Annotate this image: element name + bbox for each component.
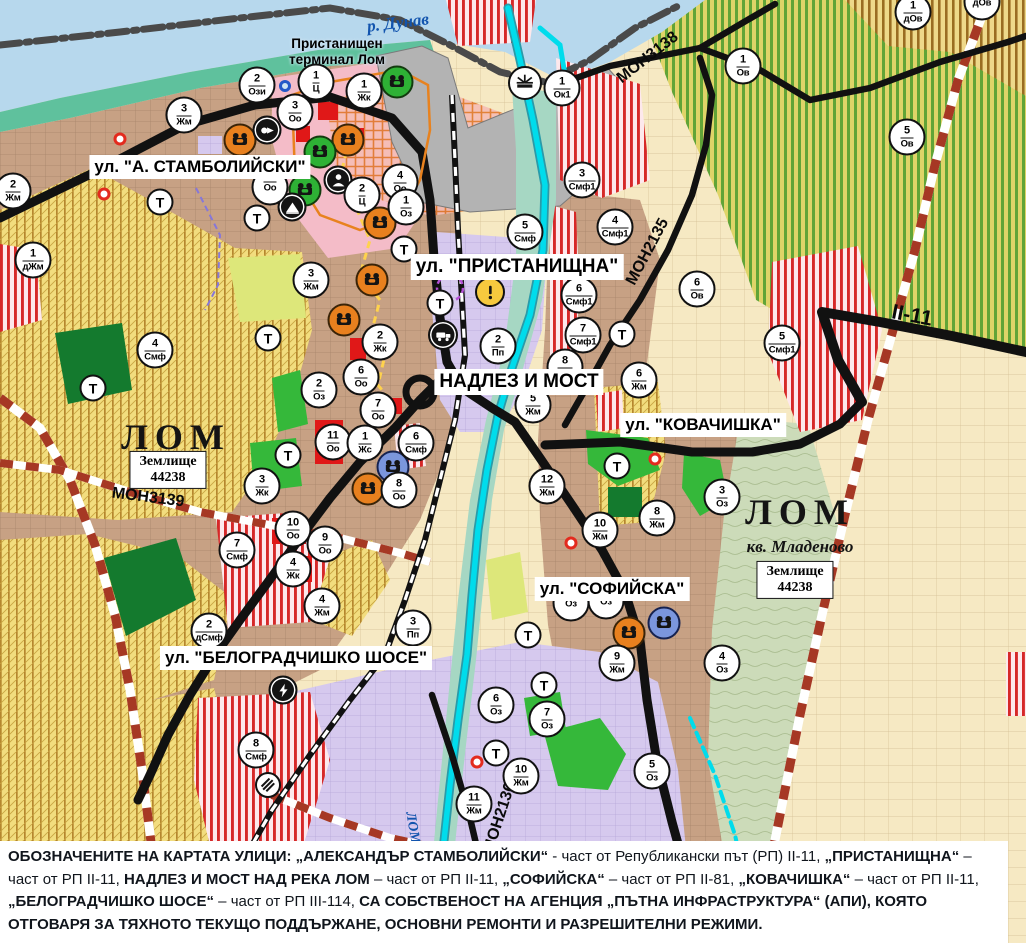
zone-number: 4: [290, 557, 296, 568]
zone-marker-3-Оо: 3Оо: [277, 94, 314, 131]
zone-marker-4-Жк: 4Жк: [275, 551, 312, 588]
zone-marker-5-Смф1: 5Смф1: [764, 325, 801, 362]
culture-site-icon: [356, 264, 389, 297]
zone-number: 4: [152, 338, 158, 349]
zone-code: Жм: [5, 191, 20, 203]
zone-code: Оз: [646, 771, 658, 783]
note-segment: „ПРИСТАНИЩНА“: [825, 848, 960, 865]
zone-code: дСмф: [195, 631, 222, 643]
zone-number: 5: [522, 220, 528, 231]
zone-code: Смф: [144, 350, 165, 362]
note-segment: „КОВАЧИШКА“: [738, 871, 850, 888]
zone-code: Пп: [492, 346, 504, 358]
zone-number: 5: [649, 759, 655, 770]
zone-marker-7-Смф1: 7Смф1: [565, 317, 602, 354]
note-segment: „СОФИЙСКА“: [502, 871, 604, 888]
zone-number: 2: [10, 179, 16, 190]
zone-number: 7: [544, 707, 550, 718]
zone-code: дОв: [973, 0, 992, 8]
zone-number: 6: [413, 431, 419, 442]
zone-marker-1-Оз: 1Оз: [388, 189, 425, 226]
street-label: ул. "БЕЛОГРАДЧИШКО ШОСЕ": [160, 646, 432, 670]
zone-code: Оз: [716, 663, 728, 675]
zone-number: 6: [493, 693, 499, 704]
zone-code: Жм: [314, 606, 329, 618]
note-segment: – част от РП II-11,: [370, 871, 503, 888]
zone-number: 2: [359, 183, 365, 194]
zone-number: 1: [362, 431, 368, 442]
zone-number: 4: [397, 170, 403, 181]
zone-number: 8: [562, 355, 568, 366]
zone-marker-2-Ози: 2Ози: [239, 67, 276, 104]
zone-marker-4-Жм: 4Жм: [304, 588, 341, 625]
warning-icon: [475, 277, 505, 307]
zone-marker-8-Смф: 8Смф: [238, 732, 275, 769]
zone-code: Жм: [631, 380, 646, 392]
zone-code: Ов: [691, 289, 704, 301]
zone-marker-3-Смф1: 3Смф1: [564, 162, 601, 199]
transport-marker: Т: [80, 375, 107, 402]
land-plot-label: Землище 44238: [756, 561, 833, 599]
zone-code: Жм: [539, 486, 554, 498]
zone-code: Ов: [901, 137, 914, 149]
zone-number: 1: [740, 54, 746, 65]
zone-number: 11: [468, 792, 480, 803]
zone-number: 6: [358, 365, 364, 376]
truck-icon: [428, 320, 458, 350]
zone-number: 1: [559, 76, 565, 87]
zone-number: 6: [636, 368, 642, 379]
zone-marker-5-Смф: 5Смф: [507, 214, 544, 251]
zone-marker-6-Жм: 6Жм: [621, 362, 658, 399]
transport-marker: Т: [427, 290, 454, 317]
zone-number: 5: [779, 331, 785, 342]
zone-number: 3: [410, 616, 416, 627]
zone-marker-2-Ц: 2Ц: [344, 177, 381, 214]
portcrane-icon: [508, 66, 542, 100]
transport-marker: Т: [483, 740, 510, 767]
zone-marker-3-Пп: 3Пп: [395, 610, 432, 647]
zone-number: 1: [361, 79, 367, 90]
zone-code: Оо: [287, 529, 300, 541]
zone-number: 1: [313, 70, 319, 81]
note-segment: – част от РП II-81,: [605, 871, 739, 888]
zone-code: Смф: [514, 232, 535, 244]
zone-number: 3: [579, 168, 585, 179]
zone-code: дЖм: [22, 260, 43, 272]
zone-number: 4: [319, 594, 325, 605]
transport-marker: Т: [255, 325, 282, 352]
zone-marker-8-Жм: 8Жм: [639, 500, 676, 537]
zone-code: Смф1: [570, 335, 597, 347]
zone-marker-3-Жм: 3Жм: [166, 97, 203, 134]
transport-marker: Т: [531, 672, 558, 699]
zone-code: Оо: [289, 112, 302, 124]
zone-number: 10: [515, 764, 527, 775]
zone-number: 4: [719, 651, 725, 662]
zone-code: Жм: [303, 280, 318, 292]
zone-number: 3: [308, 268, 314, 279]
map-canvas[interactable]: р. Дунав Пристанищен терминал Лом ЛОМ кв…: [0, 0, 1026, 943]
zone-code: Жк: [374, 342, 387, 354]
map-note: ОБОЗНАЧЕНИТЕ НА КАРТАТА УЛИЦИ: „АЛЕКСАНД…: [0, 841, 1008, 943]
zone-code: Смф: [226, 550, 247, 562]
zone-number: 4: [612, 215, 618, 226]
zone-marker-12-Жм: 12Жм: [529, 468, 566, 505]
zone-marker-8-Оо: 8Оо: [381, 472, 418, 509]
zone-number: 12: [541, 474, 553, 485]
marker-dot-red: [649, 453, 662, 466]
zone-number: 3: [719, 485, 725, 496]
marker-ring-blue: [279, 80, 291, 92]
zone-code: Жс: [358, 443, 371, 455]
zone-number: 10: [287, 517, 299, 528]
transport-marker: Т: [275, 442, 302, 469]
zone-marker-3-Жм: 3Жм: [293, 262, 330, 299]
zone-number: 6: [694, 277, 700, 288]
zone-marker-7-Оо: 7Оо: [360, 392, 397, 429]
zone-code: Жм: [513, 776, 528, 788]
zone-code: Оо: [355, 377, 368, 389]
zone-number: 2: [206, 619, 212, 630]
zone-marker-10-Жм: 10Жм: [503, 758, 540, 795]
zone-code: Оо: [264, 182, 277, 194]
zone-marker-5-Оз: 5Оз: [634, 753, 671, 790]
zone-marker-3-Оз: 3Оз: [704, 479, 741, 516]
zone-code: Жм: [649, 518, 664, 530]
zone-number: 7: [375, 398, 381, 409]
zone-number: 8: [253, 738, 259, 749]
zone-code: Ов: [737, 66, 750, 78]
zone-code: Жм: [466, 804, 481, 816]
marker-dot-red: [114, 133, 127, 146]
zone-code: Жк: [358, 91, 371, 103]
zone-code: дОв: [904, 12, 923, 24]
zone-marker-4-Оз: 4Оз: [704, 645, 741, 682]
zone-marker-7-Оз: 7Оз: [529, 701, 566, 738]
zone-marker-6-Оо: 6Оо: [343, 359, 380, 396]
culture-site-icon: [328, 304, 361, 337]
zone-code: Оз: [716, 497, 728, 509]
zone-code: Оо: [327, 442, 340, 454]
marker-dot-red: [98, 188, 111, 201]
zone-number: 10: [594, 518, 606, 529]
power-icon: [269, 676, 298, 705]
culture-site-icon: [381, 66, 414, 99]
zone-marker-9-Жм: 9Жм: [599, 645, 636, 682]
note-segment: – част от РП II-11,: [850, 871, 978, 888]
zone-marker-3-Жк: 3Жк: [244, 468, 281, 505]
zone-marker-10-Жм: 10Жм: [582, 512, 619, 549]
district-label: кв. Младеново: [747, 537, 854, 557]
zone-code: Ц: [359, 195, 366, 207]
zone-marker-6-Оз: 6Оз: [478, 687, 515, 724]
zone-marker-1-дЖм: 1дЖм: [15, 242, 52, 279]
transport-marker: Т: [147, 189, 174, 216]
note-segment: НАДЛЕЗ И МОСТ НАД РЕКА ЛОМ: [124, 871, 370, 888]
zone-code: Оз: [490, 705, 502, 717]
zone-code: Смф1: [566, 295, 593, 307]
zone-code: Оз: [400, 207, 412, 219]
zone-code: Оз: [541, 719, 553, 731]
note-segment: – част от РП III-114,: [214, 893, 359, 910]
zone-number: 9: [322, 532, 328, 543]
zone-code: Ок1: [554, 88, 571, 100]
zone-marker-11-Жм: 11Жм: [456, 786, 493, 823]
zone-number: 1: [30, 248, 36, 259]
zone-number: 6: [576, 283, 582, 294]
marker-dot-red: [565, 537, 578, 550]
zone-marker-6-Смф: 6Смф: [398, 425, 435, 462]
zone-number: 8: [654, 506, 660, 517]
city-label: ЛОМ: [745, 491, 855, 533]
zone-marker-7-Смф: 7Смф: [219, 532, 256, 569]
zone-number: 7: [580, 323, 586, 334]
zone-code: Оо: [372, 410, 385, 422]
zone-code: Жм: [525, 405, 540, 417]
zone-code: Оо: [319, 544, 332, 556]
street-label: ул. "СОФИЙСКА": [535, 577, 690, 601]
zone-marker-6-Смф1: 6Смф1: [561, 277, 598, 314]
street-label: ул. "КОВАЧИШКА": [620, 413, 786, 437]
zone-code: Ц: [313, 82, 320, 94]
zone-marker-4-Смф: 4Смф: [137, 332, 174, 369]
transport-marker: Т: [604, 453, 631, 480]
zone-code: Пп: [407, 628, 419, 640]
zone-number: 3: [259, 474, 265, 485]
zone-number: 2: [495, 334, 501, 345]
zone-code: Жк: [287, 569, 300, 581]
street-label: ул. "ПРИСТАНИЩНА": [411, 254, 624, 280]
street-label: НАДЛЕЗ И МОСТ: [434, 369, 603, 395]
zone-number: 2: [316, 378, 322, 389]
note-segment: „БЕЛОГРАДЧИШКО ШОСЕ“: [8, 893, 214, 910]
zone-code: Смф: [405, 443, 426, 455]
zone-marker-5-Ов: 5Ов: [889, 119, 926, 156]
zone-marker-2-Жк: 2Жк: [362, 324, 399, 361]
marker-dot-red: [471, 756, 484, 769]
zone-marker-1-Жк: 1Жк: [346, 73, 383, 110]
land-plot-label: Землище 44238: [129, 451, 206, 489]
zone-number: 1: [403, 195, 409, 206]
station-icon: [255, 772, 281, 798]
zone-number: 7: [234, 538, 240, 549]
zone-marker-1-Ов: 1Ов: [725, 48, 762, 85]
zone-code: Оо: [393, 490, 406, 502]
zone-marker-2-Оз: 2Оз: [301, 372, 338, 409]
zone-marker-6-Ов: 6Ов: [679, 271, 716, 308]
zone-code: Ози: [248, 85, 265, 97]
zone-code: Жм: [176, 115, 191, 127]
arrow-icon: [253, 116, 282, 145]
zone-code: Жм: [592, 530, 607, 542]
zone-code: Смф1: [602, 227, 629, 239]
zone-code: Жк: [256, 486, 269, 498]
zone-number: 3: [292, 100, 298, 111]
note-segment: ОБОЗНАЧЕНИТЕ НА КАРТАТА УЛИЦИ: „АЛЕКСАНД…: [8, 848, 548, 865]
street-label: ул. "А. СТАМБОЛИЙСКИ": [89, 155, 310, 179]
zone-marker-4-Смф1: 4Смф1: [597, 209, 634, 246]
zone-number: 2: [254, 73, 260, 84]
zone-code: Оз: [313, 390, 325, 402]
transport-marker: Т: [515, 622, 542, 649]
port-terminal-label: Пристанищен терминал Лом: [289, 36, 385, 68]
zone-number: 8: [396, 478, 402, 489]
zone-number: 1: [910, 0, 916, 11]
zone-marker-9-Оо: 9Оо: [307, 526, 344, 563]
zone-number: 3: [181, 103, 187, 114]
culture-site-icon: [648, 607, 681, 640]
transport-marker: Т: [609, 321, 636, 348]
transport-marker: Т: [244, 205, 271, 232]
zone-code: Смф1: [769, 343, 796, 355]
zone-marker-1-Жс: 1Жс: [347, 425, 384, 462]
zone-code: Смф1: [569, 180, 596, 192]
zone-number: 2: [377, 330, 383, 341]
zone-code: Смф: [245, 750, 266, 762]
zone-marker-1-Ок1: 1Ок1: [544, 70, 581, 107]
zone-number: 5: [904, 125, 910, 136]
zone-marker-2-дСмф: 2дСмф: [191, 613, 228, 650]
zone-number: 9: [614, 651, 620, 662]
zone-number: 11: [327, 430, 339, 441]
zone-code: Жм: [609, 663, 624, 675]
note-segment: - част от Републикански път (РП) II-11,: [548, 848, 824, 865]
zone-marker-2-Пп: 2Пп: [480, 328, 517, 365]
